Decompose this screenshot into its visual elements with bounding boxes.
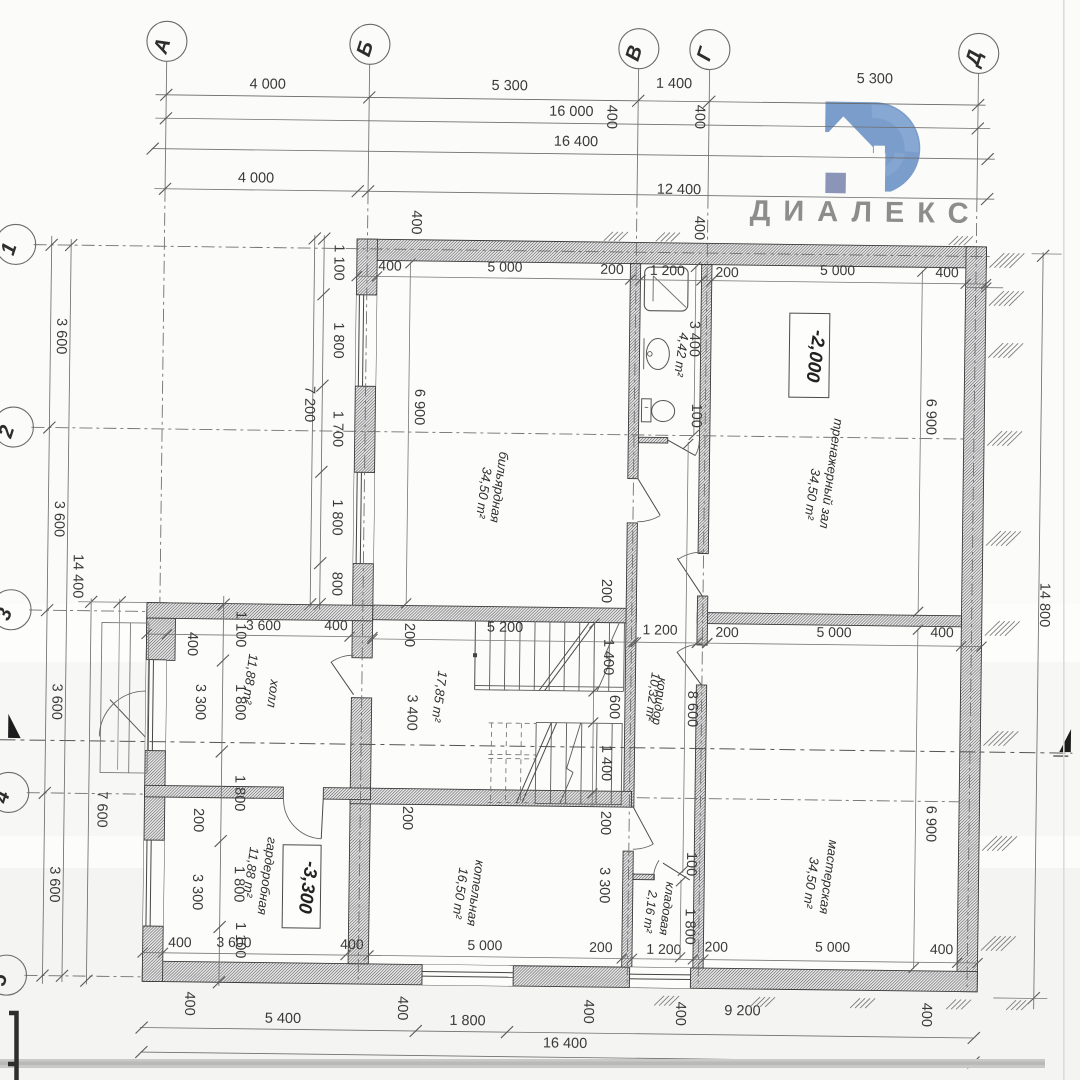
svg-text:400: 400 <box>691 105 707 129</box>
svg-text:3 300: 3 300 <box>596 867 612 903</box>
svg-text:1 400: 1 400 <box>598 745 614 781</box>
svg-text:4 000: 4 000 <box>249 76 285 92</box>
svg-text:6 900: 6 900 <box>411 389 427 425</box>
svg-text:3 300: 3 300 <box>192 684 208 720</box>
svg-text:200: 200 <box>705 938 729 954</box>
svg-text:1 800: 1 800 <box>449 1013 485 1029</box>
svg-text:1 700: 1 700 <box>329 411 345 447</box>
svg-text:3 600: 3 600 <box>216 934 251 950</box>
svg-text:1 100: 1 100 <box>330 244 346 280</box>
svg-text:400: 400 <box>918 1003 934 1027</box>
svg-text:8 600: 8 600 <box>684 691 700 727</box>
svg-text:1 800: 1 800 <box>681 908 697 944</box>
svg-text:ДИАЛЕКС: ДИАЛЕКС <box>750 195 982 230</box>
svg-text:3 600: 3 600 <box>246 617 281 633</box>
svg-text:400: 400 <box>930 624 954 640</box>
svg-text:14 400: 14 400 <box>69 554 86 599</box>
svg-text:3 600: 3 600 <box>53 318 69 354</box>
svg-text:5 300: 5 300 <box>857 71 893 87</box>
svg-text:400: 400 <box>672 1002 688 1026</box>
svg-text:5 000: 5 000 <box>815 938 850 954</box>
svg-text:5 000: 5 000 <box>467 937 502 953</box>
svg-text:400: 400 <box>394 996 410 1020</box>
svg-text:100: 100 <box>688 404 704 428</box>
svg-text:6 900: 6 900 <box>922 399 938 435</box>
svg-text:3 600: 3 600 <box>46 866 62 902</box>
svg-text:16 400: 16 400 <box>554 134 599 151</box>
svg-text:1 200: 1 200 <box>642 621 677 637</box>
svg-text:3 600: 3 600 <box>48 683 64 719</box>
svg-text:1 800: 1 800 <box>330 322 346 358</box>
svg-text:400: 400 <box>184 632 200 656</box>
svg-text:800: 800 <box>328 572 344 596</box>
svg-text:1 200: 1 200 <box>646 941 681 957</box>
svg-text:200: 200 <box>715 624 739 640</box>
svg-text:400: 400 <box>580 999 596 1023</box>
svg-text:3 300: 3 300 <box>189 874 205 910</box>
svg-text:1 400: 1 400 <box>600 639 616 675</box>
svg-text:1 800: 1 800 <box>329 499 345 535</box>
svg-text:600: 600 <box>606 695 622 719</box>
svg-text:12 400: 12 400 <box>657 182 702 199</box>
svg-text:400: 400 <box>324 617 348 633</box>
svg-text:5 400: 5 400 <box>265 1011 301 1027</box>
svg-text:3 600: 3 600 <box>50 501 66 537</box>
svg-text:200: 200 <box>598 579 614 603</box>
svg-text:14 800: 14 800 <box>1036 583 1053 628</box>
svg-text:400: 400 <box>378 257 402 273</box>
svg-text:4 000: 4 000 <box>238 170 274 186</box>
svg-text:5 000: 5 000 <box>487 258 522 274</box>
svg-text:400: 400 <box>930 941 954 957</box>
svg-text:400: 400 <box>340 936 364 952</box>
svg-text:200: 200 <box>600 261 624 277</box>
svg-text:400: 400 <box>935 264 959 280</box>
svg-text:400: 400 <box>168 934 192 950</box>
svg-text:16 000: 16 000 <box>549 104 594 121</box>
svg-text:400: 400 <box>181 991 197 1015</box>
svg-text:5 300: 5 300 <box>491 78 527 94</box>
svg-text:1 800: 1 800 <box>231 775 247 811</box>
svg-text:400: 400 <box>691 216 707 240</box>
svg-text:7 200: 7 200 <box>301 386 317 422</box>
svg-text:5 200: 5 200 <box>487 620 523 636</box>
svg-text:200: 200 <box>715 264 739 280</box>
svg-text:7 600: 7 600 <box>93 791 109 827</box>
svg-text:200: 200 <box>597 811 613 835</box>
svg-text:200: 200 <box>399 806 415 830</box>
svg-text:3 400: 3 400 <box>403 694 419 730</box>
svg-text:200: 200 <box>401 623 417 647</box>
svg-text:5 000: 5 000 <box>816 624 851 640</box>
svg-text:400: 400 <box>408 210 424 234</box>
svg-text:400: 400 <box>603 105 619 129</box>
svg-text:100: 100 <box>683 852 699 876</box>
svg-text:1 400: 1 400 <box>656 76 692 92</box>
svg-text:5 000: 5 000 <box>820 262 855 278</box>
svg-text:6 900: 6 900 <box>922 806 938 842</box>
svg-text:200: 200 <box>589 939 613 955</box>
svg-text:200: 200 <box>190 808 206 832</box>
svg-text:9 200: 9 200 <box>724 1003 760 1019</box>
svg-text:16 400: 16 400 <box>543 1035 588 1052</box>
svg-text:1 200: 1 200 <box>650 262 685 278</box>
